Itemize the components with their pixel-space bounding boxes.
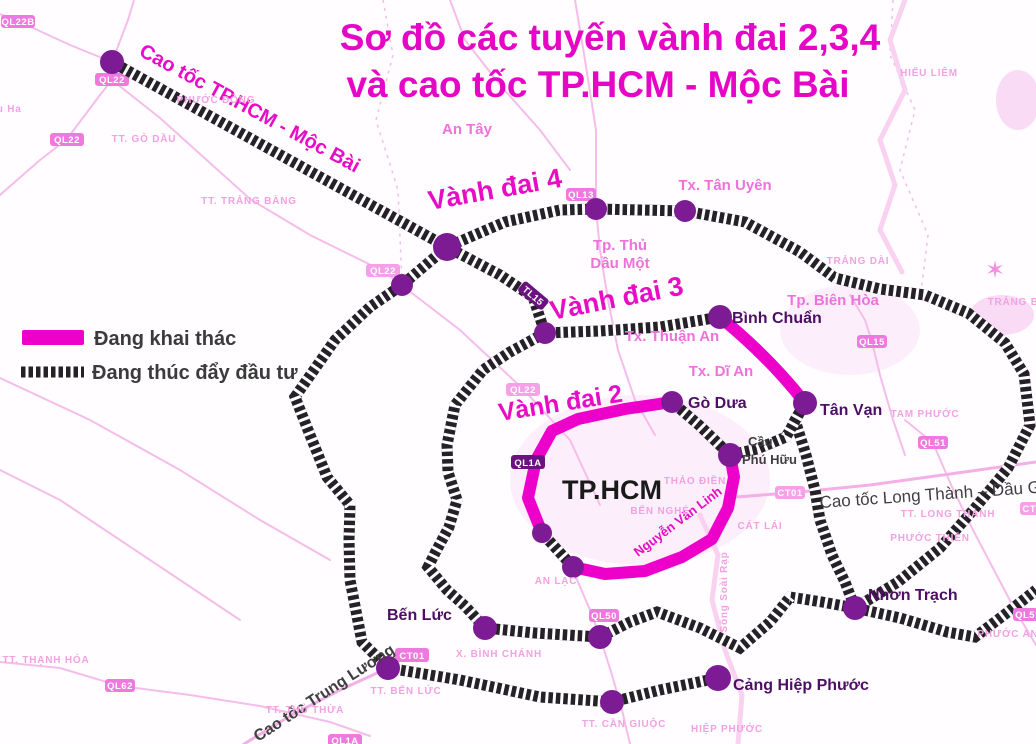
ql22-left-badge: QL22 [50, 133, 84, 146]
an-lac-label: AN LẠC [535, 576, 578, 587]
svg-text:QL13: QL13 [568, 190, 594, 201]
ql62-badge: QL62 [105, 679, 135, 692]
phu-huu-node [718, 443, 742, 467]
ct01-edge-badge: CT01 [1020, 502, 1036, 515]
ql22-top-badge: QL22 [95, 73, 129, 86]
phuoc-dong-label: PHƯỚC ĐÔNG [177, 93, 256, 106]
tan-van-node [793, 391, 817, 415]
go-dua-label: Gò Dưa [688, 395, 747, 412]
ql15-badge: QL15 [857, 335, 887, 348]
road-sw-1 [0, 378, 330, 560]
tt-can-giuoc-label: TT. CẦN GIUỘC [582, 717, 666, 730]
ql1a-bottom-badge: QL1A [328, 734, 362, 744]
ql50-badge: QL50 [589, 609, 619, 622]
phuoc-thien-label: PHƯỚC THIỀN [890, 531, 970, 544]
soai-rap-river-label: Sông Soài Rạp [719, 552, 730, 633]
tt-long-thanh-label: TT. LONG THÀNH [901, 507, 996, 520]
tan-uyen-label: Tx. Tân Uyên [678, 177, 771, 194]
ql13-node [585, 198, 607, 220]
title-line1: Sơ đồ các tuyến vành đai 2,3,4 [340, 17, 881, 58]
ring4-label: Vành đai 4 [426, 163, 564, 216]
hiep-phuoc-port-node [705, 665, 731, 691]
terrain-blob-ne [996, 70, 1036, 130]
binh-chuan-label: Bình Chuẩn [732, 309, 822, 327]
svg-text:QL51: QL51 [1015, 610, 1036, 621]
thu-dau-mot-label-2: Dầu Một [590, 255, 649, 272]
ql50-node [588, 625, 612, 649]
ql51-badge: QL51 [918, 436, 948, 449]
moc-bai-route-label: Cao tốc TP.HCM - Mộc Bài [136, 40, 364, 177]
ring3-sw-node [473, 616, 497, 640]
dau-ha-label: Dầu Ha [0, 103, 22, 115]
long-thanh-label: Cao tốc Long Thành – Dầu Giây [819, 476, 1036, 512]
bien-hoa-label: Tp. Biên Hòa [787, 292, 879, 309]
tphcm-label: TP.HCM [562, 475, 662, 505]
di-an-label: Tx. Dĩ An [689, 363, 753, 380]
ring3-label: Vành đai 3 [547, 271, 685, 326]
title-line2: và cao tốc TP.HCM - Mộc Bài [346, 64, 849, 105]
cau-phu-huu-label-2: Phú Hữu [742, 452, 797, 467]
can-giuoc-node [600, 690, 624, 714]
godau-node [100, 50, 124, 74]
svg-text:CT01: CT01 [1022, 504, 1036, 515]
tan-uyen-node [674, 200, 696, 222]
svg-text:QL1A: QL1A [331, 736, 358, 744]
tt-trang-bang-label: TT. TRẢNG BÀNG [201, 194, 297, 207]
nhon-trach-label: Nhơn Trạch [868, 587, 958, 604]
cang-hiep-phuoc-label: Cảng Hiệp Phước [733, 677, 869, 694]
ben-luc-label: Bến Lức [387, 607, 452, 624]
ben-nghe-label: BẾN NGHÉ [630, 504, 689, 517]
svg-text:QL22: QL22 [54, 135, 80, 146]
legend-operating-label: Đang khai thác [94, 328, 236, 350]
go-dua-node [661, 391, 683, 413]
dong-nai-river [880, 0, 905, 272]
map-title: Sơ đồ các tuyến vành đai 2,3,4 và cao tố… [340, 17, 881, 105]
tt-ben-luc-label: TT. BẾN LỨC [371, 684, 442, 697]
svg-text:QL51: QL51 [920, 438, 946, 449]
thuan-an-label: Tx. Thuận An [625, 328, 719, 345]
star-symbol: ✶ [985, 257, 1005, 284]
ql22-mid-badge: QL22 [366, 264, 400, 277]
svg-text:QL22B: QL22B [1, 17, 34, 28]
binh-chanh-label: X. BÌNH CHÁNH [456, 647, 542, 660]
tt-go-dau-label: TT. GÒ DẦU [112, 132, 177, 145]
svg-text:CT01: CT01 [399, 651, 424, 662]
svg-text:CT01: CT01 [777, 488, 802, 499]
map-canvas: ✶ QL22 CT01 QL22B QL22 QL22 QL22 Q [0, 0, 1036, 744]
ql22b-badge: QL22B [1, 15, 35, 28]
tan-van-label: Tân Vạn [820, 402, 882, 419]
thao-dien-label: THẢO ĐIỀN [664, 474, 726, 487]
svg-text:QL22: QL22 [99, 75, 125, 86]
nhon-trach-node [843, 596, 867, 620]
trang-bom-label: TRẢNG BOM [988, 295, 1036, 308]
ql22-crossing-node [391, 274, 413, 296]
phuoc-an-label: PHƯỚC AN [977, 627, 1036, 640]
tt-thanh-hoa-label: TT. THẠNH HÓA [2, 653, 89, 666]
ring2-sw2-node [562, 556, 584, 578]
ql1a-badge: QL1A [511, 455, 545, 469]
legend: Đang khai thác Đang thúc đẩy đầu tư [18, 328, 298, 384]
road-sw-2 [0, 470, 240, 620]
svg-text:QL1A: QL1A [514, 458, 541, 469]
legend-operating-swatch [22, 330, 84, 345]
ct01-west-badge: CT01 [395, 648, 429, 662]
legend-investing-label: Đang thúc đẩy đầu tư [92, 362, 298, 384]
ring4-mocbai-node [433, 233, 461, 261]
svg-text:QL50: QL50 [591, 611, 617, 622]
thu-dau-mot-label-1: Tp. Thủ [593, 237, 647, 254]
ql51-edge-badge: QL51 [1013, 608, 1036, 621]
cau-phu-huu-label-1: Cầu [748, 434, 773, 449]
hiep-phuoc-label: HIỆP PHƯỚC [691, 722, 763, 735]
svg-text:QL22: QL22 [370, 266, 396, 277]
svg-text:QL62: QL62 [107, 681, 133, 692]
ct01-east-badge: CT01 [775, 486, 805, 499]
cat-lai-label: CÁT LÁI [737, 519, 782, 532]
tt-thu-thua-label: TT. THỦ THỪA [266, 703, 344, 716]
ring-roads-map: ✶ QL22 CT01 QL22B QL22 QL22 QL22 Q [0, 0, 1036, 744]
trang-dai-label: TRẢNG DÀI [827, 254, 890, 267]
tam-phuoc-label: TAM PHƯỚC [891, 407, 960, 420]
binh-chuan-node [708, 305, 732, 329]
hieu-liem-label: HIẾU LIÊM [900, 66, 958, 79]
ring2-sw1-node [532, 523, 552, 543]
an-tay-label: An Tây [442, 121, 493, 138]
svg-text:QL15: QL15 [859, 337, 885, 348]
